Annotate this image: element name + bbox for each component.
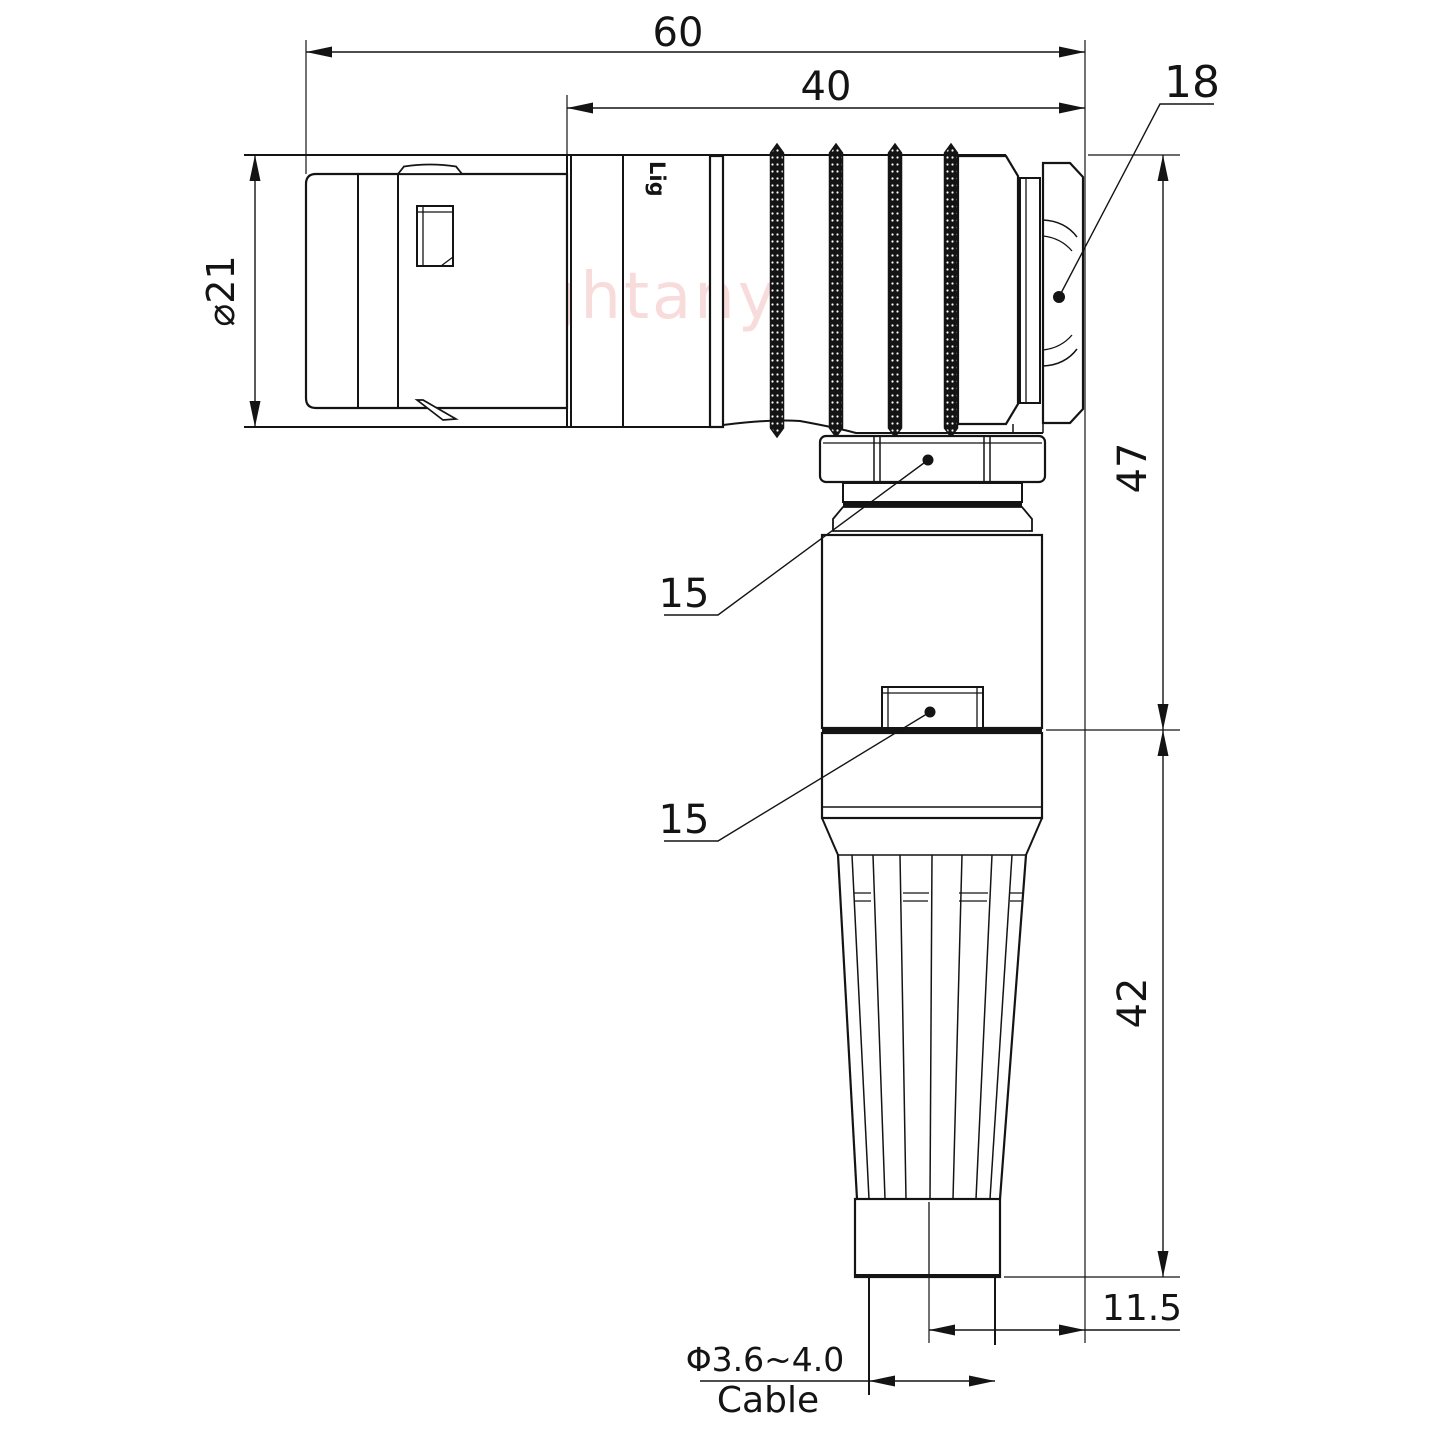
dimension-height-upper: 47 — [1110, 155, 1169, 730]
knurl-band-4 — [945, 144, 958, 437]
elbow-body-view — [820, 436, 1045, 1395]
dimension-axis-offset: 11.5 — [929, 1288, 1182, 1336]
keying-window — [417, 206, 453, 266]
barrel-ring — [710, 156, 723, 427]
dimension-cable-diameter: Φ3.6~4.0 Cable — [686, 1340, 995, 1421]
washer-ring — [1020, 178, 1040, 403]
cable-ferrule — [855, 1199, 1000, 1278]
technical-drawing-page: Lightany Lig — [0, 0, 1440, 1440]
shoulder-left — [822, 818, 838, 855]
dimension-height-lower: 42 — [1110, 730, 1169, 1277]
svg-text:40: 40 — [801, 64, 852, 110]
knurl-band-3 — [889, 144, 902, 437]
svg-text:60: 60 — [653, 10, 704, 56]
svg-text:Cable: Cable — [717, 1380, 819, 1421]
dimension-shell-diameter: ⌀21 — [199, 155, 261, 427]
connector-drawing-svg: Lightany Lig — [0, 0, 1440, 1440]
strain-relief-taper — [838, 855, 1026, 1199]
knurl-band-2 — [830, 144, 843, 437]
dimension-overall-length: 60 — [306, 10, 1085, 58]
rear-collar — [958, 156, 1018, 424]
neck-ring — [843, 483, 1022, 502]
svg-text:42: 42 — [1110, 978, 1156, 1029]
svg-text:11.5: 11.5 — [1102, 1288, 1182, 1329]
neck-flare — [833, 507, 1032, 531]
knurl-band-1 — [771, 144, 784, 437]
shoulder-right — [1026, 818, 1042, 855]
svg-text:15: 15 — [659, 571, 710, 617]
svg-text:15: 15 — [659, 797, 710, 843]
svg-text:47: 47 — [1110, 443, 1156, 494]
lower-boot — [822, 733, 1042, 818]
svg-text:18: 18 — [1164, 57, 1220, 108]
svg-text:⌀21: ⌀21 — [199, 255, 243, 326]
dimension-rear-length: 40 — [567, 64, 1085, 114]
sleeve-top-tab — [398, 165, 462, 175]
svg-text:Φ3.6~4.0: Φ3.6~4.0 — [686, 1340, 845, 1379]
part-marking-text: Lig — [645, 161, 669, 197]
